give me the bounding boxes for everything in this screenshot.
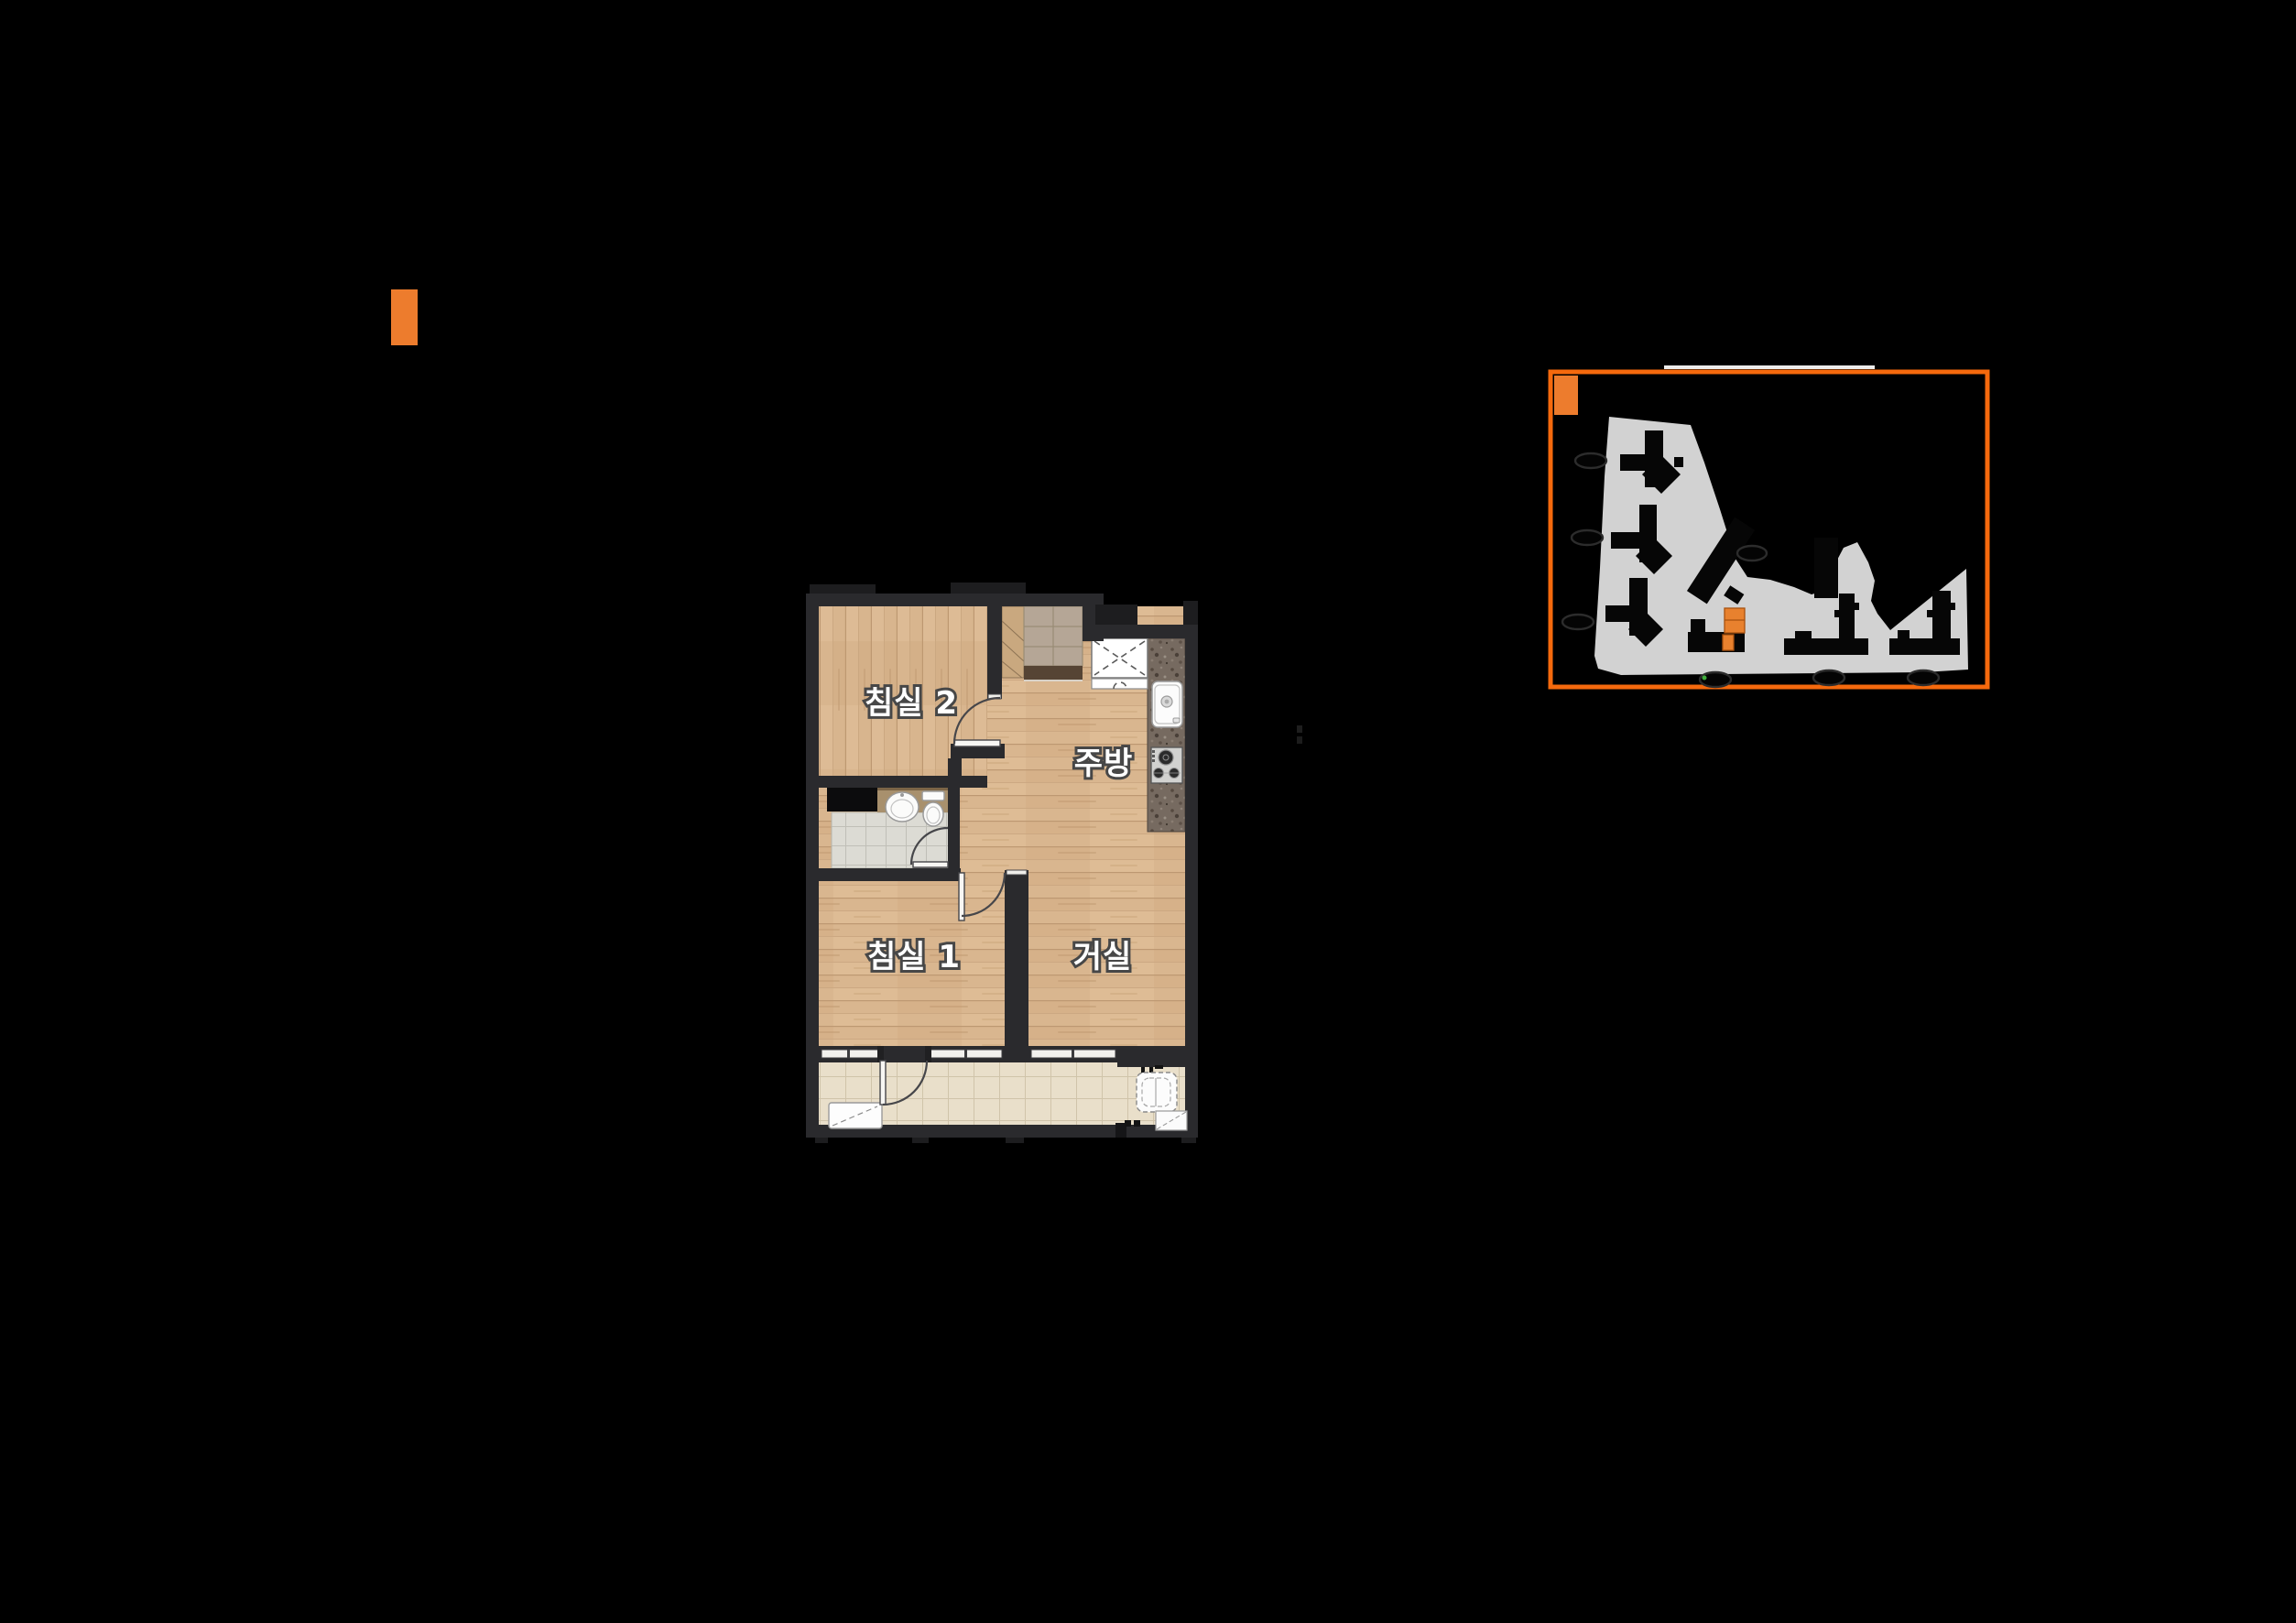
ac-unit-icon [1137, 1073, 1177, 1112]
building-label-oval [1562, 615, 1594, 629]
kitchen-sink-icon [1152, 681, 1182, 727]
minimap-legend-swatch [1554, 376, 1578, 415]
building-label-oval [1572, 530, 1603, 545]
entry-threshold [1024, 666, 1083, 680]
room-label-living: 거실 [1073, 939, 1133, 975]
washer-icon [829, 1103, 882, 1128]
site-plan-minimap [1543, 359, 1997, 696]
duct-space [827, 786, 877, 811]
green-dot [1703, 676, 1707, 681]
faint-mark-bottom [1297, 736, 1302, 744]
building-label-oval [1575, 453, 1606, 468]
room-label-bedroom2: 침실 2 [865, 685, 958, 722]
minimap-top-tick [1664, 365, 1875, 369]
highlighted-building-lower [1723, 635, 1734, 650]
building-label-oval [1813, 670, 1844, 685]
bedroom2-right-wall [987, 606, 1002, 699]
faint-mark-top [1297, 725, 1302, 733]
stove-icon [1151, 747, 1182, 783]
toilet-icon [922, 791, 944, 826]
floor-plan-image: 침실 2 주방 침실 1 거실 [801, 577, 1204, 1143]
room-label-kitchen: 주방 [1074, 746, 1134, 782]
entry-area [1002, 595, 1083, 681]
bathroom [827, 786, 957, 868]
refrigerator-icon [1092, 638, 1148, 689]
page-background: { "page": { "background": "#000000" }, "… [0, 0, 2296, 1623]
building-label-oval [1908, 670, 1939, 685]
condenser-pad-icon [1156, 1111, 1187, 1130]
kitchen-counter [1148, 638, 1185, 832]
shoe-cabinet [1002, 606, 1024, 678]
orange-marker [391, 289, 418, 345]
building-column [1814, 538, 1838, 598]
faint-dimension-mark [1294, 724, 1307, 747]
center-wall [1005, 870, 1028, 1046]
building-label-oval [1737, 546, 1767, 561]
orange-marker-rect [391, 289, 418, 345]
room-label-bedroom1: 침실 1 [867, 939, 961, 975]
